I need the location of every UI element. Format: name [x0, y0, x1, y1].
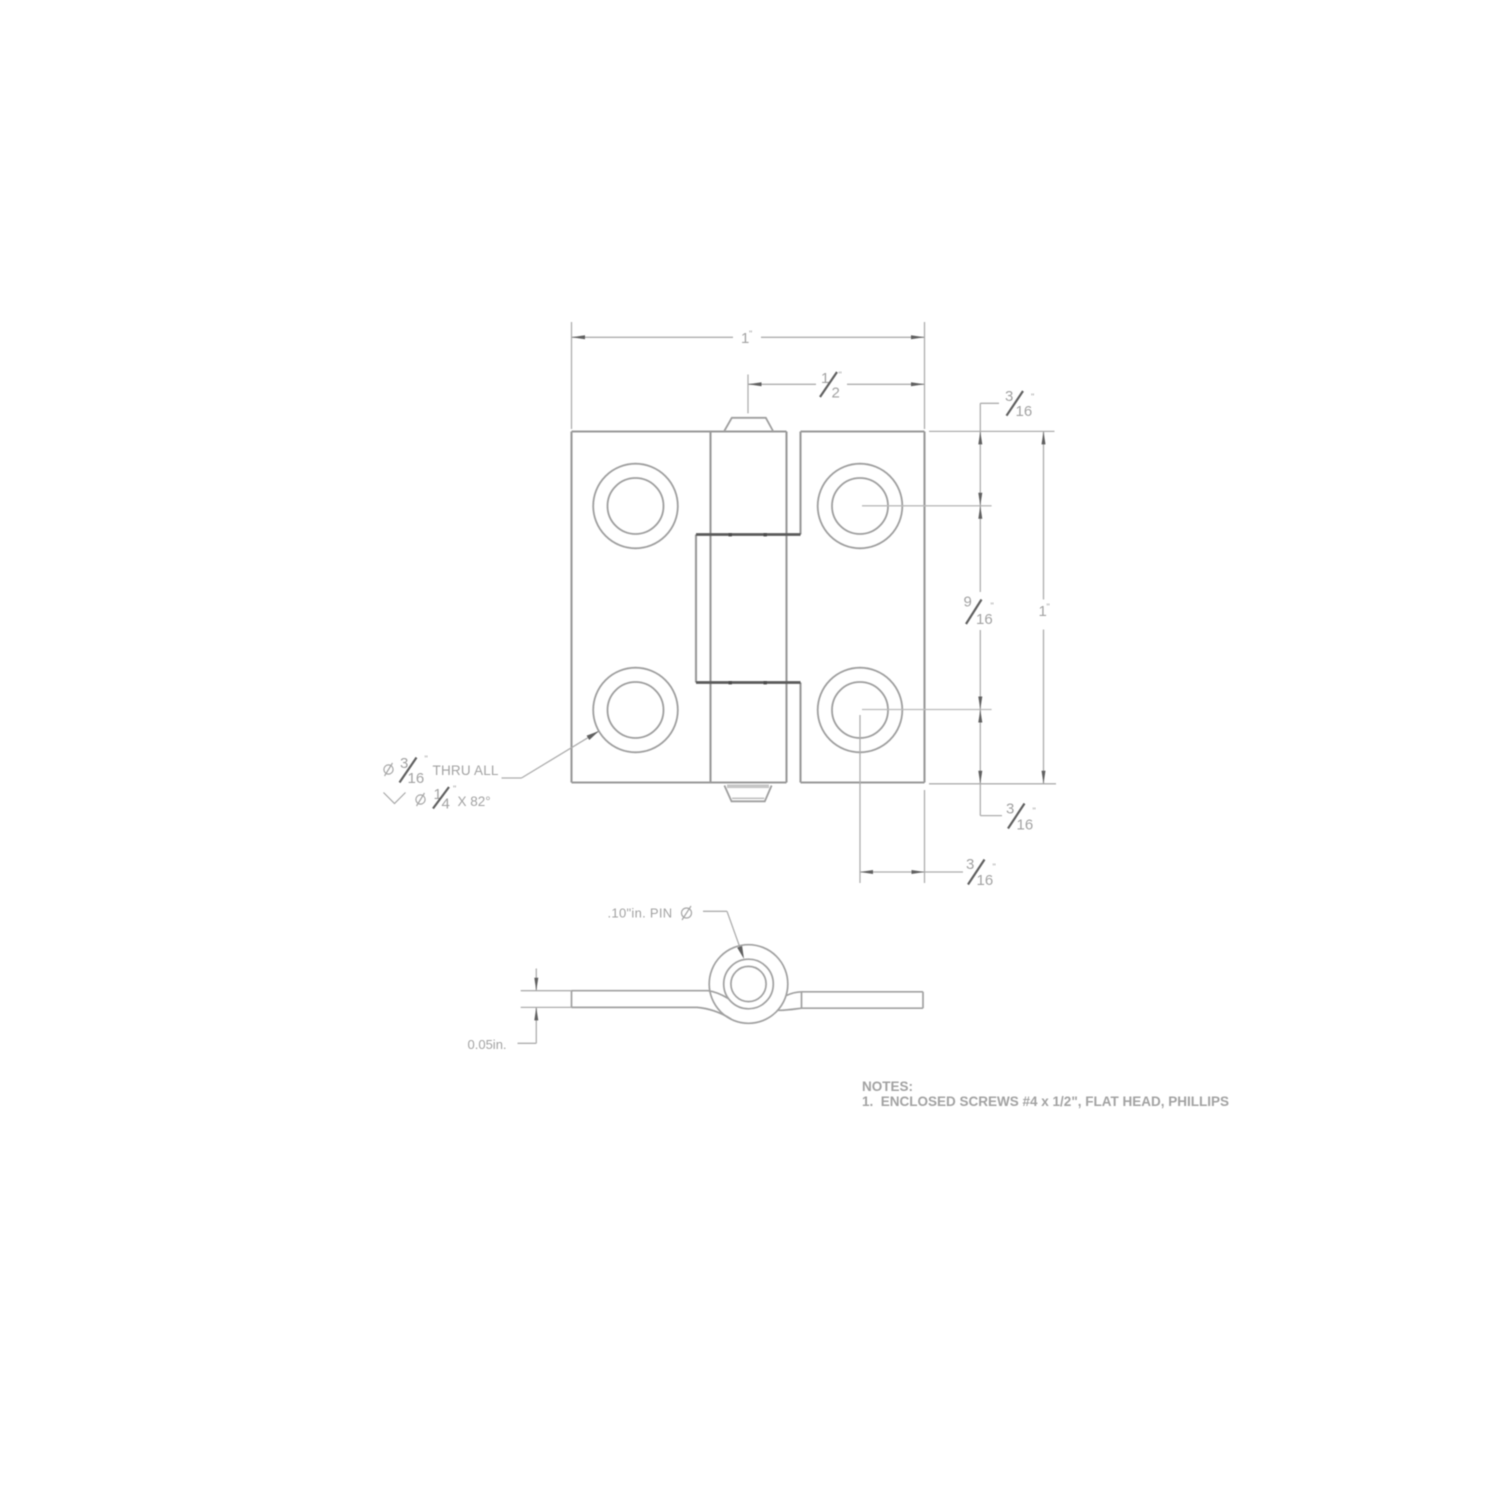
svg-text:": " [1033, 806, 1036, 816]
svg-text:16: 16 [408, 770, 425, 787]
svg-text:3: 3 [966, 856, 974, 873]
svg-text:3: 3 [1005, 388, 1013, 405]
svg-text:NOTES:: NOTES: [862, 1079, 913, 1094]
svg-text:": " [993, 862, 996, 872]
svg-text:X 82°: X 82° [458, 794, 491, 809]
svg-text:9: 9 [964, 594, 972, 611]
svg-text:16: 16 [1016, 403, 1033, 420]
svg-text:": " [1031, 392, 1034, 402]
svg-text:16: 16 [976, 611, 993, 628]
svg-text:0.05in.: 0.05in. [468, 1037, 507, 1052]
svg-text:.10"in. PIN: .10"in. PIN [608, 906, 673, 921]
svg-text:": " [425, 754, 428, 764]
svg-text:4: 4 [442, 796, 450, 813]
svg-text:": " [991, 601, 994, 611]
svg-text:16: 16 [977, 872, 994, 889]
svg-text:": " [453, 784, 456, 794]
svg-text:": " [1047, 602, 1050, 612]
svg-text:THRU ALL: THRU ALL [433, 763, 499, 778]
svg-text:": " [839, 370, 842, 380]
svg-text:3: 3 [1006, 801, 1014, 818]
svg-text:1. ENCLOSED SCREWS #4 x 1/2",: 1. ENCLOSED SCREWS #4 x 1/2", FLAT HEAD,… [862, 1094, 1229, 1109]
svg-text:": " [749, 329, 752, 339]
svg-text:2: 2 [832, 385, 840, 402]
svg-text:16: 16 [1017, 817, 1034, 834]
